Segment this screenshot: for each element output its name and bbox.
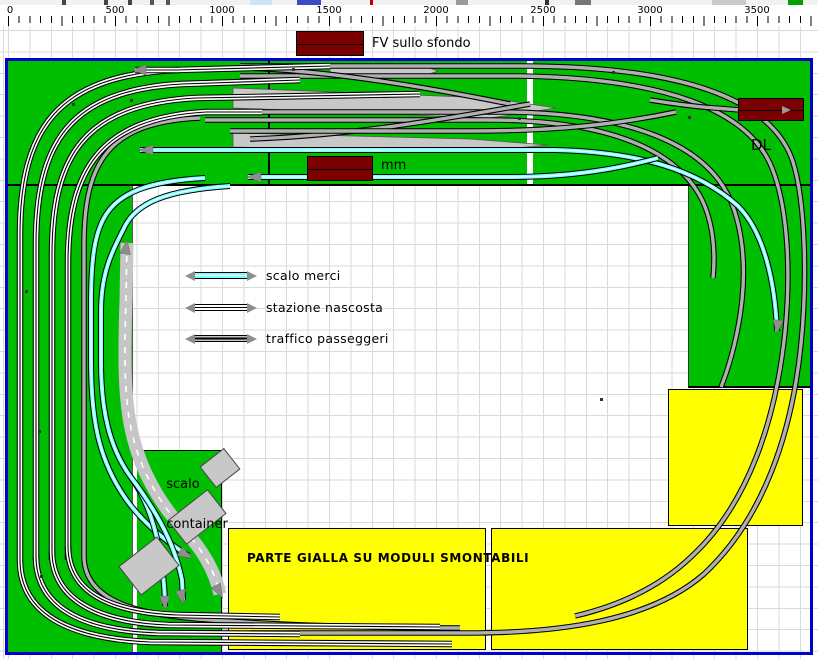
scalo-container-label[interactable]: scalo container — [158, 455, 228, 535]
ruler-label: 3500 — [744, 5, 769, 16]
baseboard-top-band[interactable] — [8, 61, 810, 186]
turnout-marker — [130, 99, 133, 102]
ruler-label: 1000 — [209, 5, 234, 16]
toolbar-fragment — [62, 0, 66, 5]
building-divider — [308, 169, 372, 171]
yellow-module-right[interactable] — [491, 528, 748, 650]
dl-building[interactable] — [738, 98, 804, 121]
module-boundary-line — [268, 61, 270, 184]
legend-item-stazione-nascosta[interactable]: stazione nascosta — [185, 300, 383, 315]
legend-item-scalo-merci[interactable]: scalo merci — [185, 268, 341, 283]
cyan-track-sample — [195, 272, 247, 279]
building-divider — [297, 44, 363, 46]
legend-item-traffico-passeggeri[interactable]: traffico passeggeri — [185, 331, 389, 346]
toolbar-fragment — [250, 0, 272, 5]
turnout-marker — [292, 68, 295, 71]
horizontal-ruler: 0 500 1000 1500 2000 2500 3000 3500 — [0, 5, 818, 26]
ruler-label: 3000 — [637, 5, 662, 16]
toolbar-cropped — [0, 0, 818, 5]
module-gap — [527, 61, 533, 184]
toolbar-fragment — [575, 0, 591, 5]
scalo-container-line2: container — [166, 517, 228, 532]
ruler-label: 2500 — [530, 5, 555, 16]
parte-gialla-label[interactable]: PARTE GIALLA SU MODULI SMONTABILI — [247, 551, 529, 565]
arrow-left-icon — [185, 303, 195, 313]
white-track-sample — [195, 304, 247, 311]
turnout-marker — [518, 117, 521, 120]
toolbar-fragment — [712, 0, 746, 5]
toolbar-fragment — [545, 0, 549, 5]
arrow-left-icon — [185, 271, 195, 281]
ruler-ticks-minor — [8, 16, 818, 23]
legend-label: scalo merci — [266, 268, 341, 283]
building-divider — [739, 110, 803, 112]
legend-label: traffico passeggeri — [266, 331, 389, 346]
yellow-module-left[interactable] — [228, 528, 486, 650]
toolbar-fragment — [788, 0, 803, 5]
turnout-marker — [40, 575, 43, 578]
toolbar-fragment — [150, 0, 154, 5]
gray-track-sample — [195, 335, 247, 342]
direction-arrow-icon — [782, 106, 791, 114]
fv-building[interactable] — [296, 31, 364, 56]
turnout-marker — [688, 116, 691, 119]
toolbar-fragment — [456, 0, 468, 5]
toolbar-fragment — [166, 0, 170, 5]
legend-label: stazione nascosta — [266, 300, 383, 315]
fv-sullo-sfondo-label[interactable]: FV sullo sfondo — [372, 36, 471, 51]
mm-building[interactable] — [307, 156, 373, 181]
arrow-right-icon — [247, 271, 257, 281]
turnout-marker — [72, 103, 75, 106]
arrow-right-icon — [247, 303, 257, 313]
arrow-right-icon — [247, 334, 257, 344]
ruler-label: 0 — [7, 5, 13, 16]
turnout-marker — [612, 71, 615, 74]
ruler-label: 2000 — [423, 5, 448, 16]
mm-label[interactable]: mm — [381, 158, 406, 173]
ruler-label: 500 — [105, 5, 124, 16]
turnout-marker — [600, 398, 603, 401]
toolbar-fragment — [297, 0, 321, 5]
turnout-marker — [25, 290, 28, 293]
turnout-marker — [38, 430, 41, 433]
baseboard-left-strip[interactable] — [8, 186, 133, 652]
module-gap — [133, 450, 137, 652]
ruler-label: 1500 — [316, 5, 341, 16]
scalo-container-line1: scalo — [166, 477, 199, 492]
baseboard-right-strip[interactable] — [688, 186, 810, 388]
arrow-left-icon — [185, 334, 195, 344]
toolbar-fragment — [104, 0, 108, 5]
toolbar-fragment — [128, 0, 132, 5]
yellow-module-square[interactable] — [668, 389, 803, 526]
toolbar-fragment — [370, 0, 373, 5]
dl-label[interactable]: DL — [751, 136, 771, 154]
